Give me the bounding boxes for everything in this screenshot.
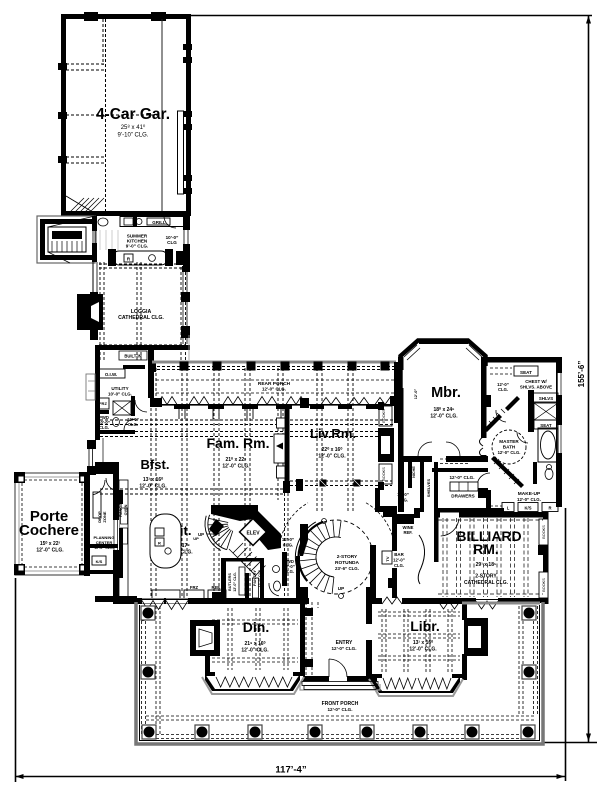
svg-text:18⁰ x 24⁶: 18⁰ x 24⁶ [434, 407, 455, 413]
svg-text:13¹ x 16⁰: 13¹ x 16⁰ [143, 477, 163, 483]
svg-text:O.I.W.: O.I.W. [105, 372, 117, 377]
svg-text:ELEV: ELEV [246, 531, 260, 537]
svg-text:12’-0” CLG.: 12’-0” CLG. [318, 454, 346, 460]
svg-text:UTILITY: UTILITY [111, 386, 128, 391]
svg-text:UP: UP [198, 532, 204, 537]
svg-text:12’-0” CLG.: 12’-0” CLG. [331, 646, 356, 651]
svg-text:RM.: RM. [473, 541, 499, 557]
svg-text:12’-0” CLG.: 12’-0” CLG. [498, 450, 521, 455]
svg-text:ZONE: ZONE [102, 511, 107, 522]
svg-text:12’-0” CLG.: 12’-0” CLG. [36, 548, 64, 554]
svg-text:12’-0” CLG.: 12’-0” CLG. [262, 387, 286, 392]
svg-text:10’-0” CLG.: 10’-0” CLG. [108, 392, 132, 397]
svg-text:155’-6”: 155’-6” [577, 361, 586, 388]
svg-text:GRILL: GRILL [152, 220, 166, 225]
svg-text:CLG.: CLG. [99, 425, 109, 430]
svg-text:REF.: REF. [211, 585, 220, 590]
svg-text:SEAT: SEAT [540, 423, 552, 428]
svg-text:K/S: K/S [96, 559, 103, 564]
svg-text:BAR: BAR [394, 552, 404, 557]
svg-text:SEAT: SEAT [520, 370, 532, 375]
svg-text:RANGE: RANGE [119, 503, 123, 517]
svg-text:CLG.: CLG. [284, 569, 294, 574]
svg-text:22⁰ x 16⁰: 22⁰ x 16⁰ [322, 447, 343, 453]
svg-text:L: L [507, 506, 510, 511]
svg-text:BATH: BATH [503, 445, 516, 450]
svg-text:CLG.: CLG. [394, 563, 404, 568]
svg-text:Din.: Din. [243, 619, 269, 635]
svg-text:12’-0”: 12’-0” [393, 558, 405, 563]
svg-text:4-Car Gar.: 4-Car Gar. [96, 106, 170, 123]
svg-text:12’-0” CLG.: 12’-0” CLG. [233, 572, 237, 592]
svg-text:OVEN: OVEN [124, 504, 128, 515]
svg-text:CATHEDRAL CLG.: CATHEDRAL CLG. [464, 580, 509, 586]
svg-text:BUTLERS: BUTLERS [228, 573, 232, 591]
svg-text:CHEST W/: CHEST W/ [525, 379, 547, 384]
svg-text:117’-4”: 117’-4” [275, 765, 306, 776]
svg-text:CLG.: CLG. [398, 498, 408, 503]
svg-text:FRZ: FRZ [190, 585, 199, 590]
svg-text:2-STORY: 2-STORY [475, 574, 497, 580]
svg-text:CENTER: CENTER [96, 540, 113, 545]
svg-text:9’-0” CLG.: 9’-0” CLG. [126, 244, 148, 249]
svg-text:25⁸ x 41⁰: 25⁸ x 41⁰ [121, 124, 146, 131]
svg-text:CATHEDRAL CLG.: CATHEDRAL CLG. [118, 315, 164, 321]
svg-text:12’-0” CLG.: 12’-0” CLG. [430, 414, 458, 420]
svg-text:PANTRY: PANTRY [252, 570, 257, 586]
svg-text:CLG.: CLG. [498, 387, 508, 392]
svg-text:12’-0” CLG.: 12’-0” CLG. [139, 484, 167, 490]
svg-text:TV: TV [385, 556, 390, 561]
svg-text:2-STORY: 2-STORY [337, 554, 358, 560]
svg-text:12’-0” CLG.: 12’-0” CLG. [241, 648, 269, 654]
svg-text:REF.: REF. [403, 530, 412, 535]
svg-text:NICHE: NICHE [412, 466, 416, 478]
svg-text:23’-6” CLG.: 23’-6” CLG. [335, 566, 359, 571]
svg-text:12’-0” CLG.: 12’-0” CLG. [327, 707, 352, 712]
svg-text:NICHE: NICHE [367, 660, 371, 672]
svg-text:DRAWERS: DRAWERS [451, 494, 474, 499]
svg-text:Cochere: Cochere [19, 522, 79, 539]
svg-text:21⁰ x 22⁶: 21⁰ x 22⁶ [226, 457, 247, 463]
svg-text:12’-0”: 12’-0” [282, 537, 294, 542]
svg-text:BOOKS: BOOKS [542, 525, 546, 539]
svg-text:CLG: CLG [167, 240, 177, 245]
svg-text:12’-0”: 12’-0” [414, 389, 418, 400]
svg-text:Libr.: Libr. [410, 618, 440, 634]
svg-text:Mbr.: Mbr. [431, 385, 461, 401]
svg-text:29¹ x 18⁵: 29¹ x 18⁵ [476, 562, 497, 568]
svg-text:12’-0” CLG.: 12’-0” CLG. [409, 647, 437, 653]
svg-text:12’-0” CLG.: 12’-0” CLG. [222, 464, 250, 470]
svg-text:12’-0” CLG.: 12’-0” CLG. [517, 497, 541, 502]
svg-text:BOOKS: BOOKS [542, 578, 546, 592]
svg-text:NICHE: NICHE [367, 608, 371, 620]
svg-text:12’-0” CLG.: 12’-0” CLG. [449, 475, 474, 480]
svg-text:SHELVES: SHELVES [426, 478, 431, 497]
svg-text:R: R [158, 541, 161, 546]
svg-text:12’-0”: 12’-0” [397, 492, 409, 497]
svg-text:MASTER: MASTER [499, 439, 519, 444]
svg-text:12’-0” CLG.: 12’-0” CLG. [94, 546, 114, 550]
svg-text:CLG.: CLG. [283, 543, 294, 548]
svg-text:R: R [548, 506, 551, 511]
svg-text:Bfst.: Bfst. [141, 457, 170, 472]
svg-text:BOOKS: BOOKS [382, 409, 386, 423]
svg-text:BUILT-IN: BUILT-IN [124, 354, 141, 359]
svg-text:21⁹ x 16⁰: 21⁹ x 16⁰ [244, 641, 265, 647]
svg-text:SHLVS. ABOVE: SHLVS. ABOVE [520, 385, 552, 390]
svg-text:K/S: K/S [525, 506, 532, 511]
svg-text:9’-10” CLG.: 9’-10” CLG. [117, 133, 148, 139]
svg-text:12’-0” CLG.: 12’-0” CLG. [258, 569, 262, 588]
svg-text:Fam. Rm.: Fam. Rm. [206, 435, 269, 451]
svg-text:BOOKS: BOOKS [382, 467, 386, 481]
svg-text:UP: UP [338, 586, 344, 591]
svg-text:SHLVS: SHLVS [539, 396, 553, 401]
svg-text:FRZ: FRZ [99, 401, 107, 406]
svg-text:15⁰ x 22²: 15⁰ x 22² [40, 541, 61, 547]
